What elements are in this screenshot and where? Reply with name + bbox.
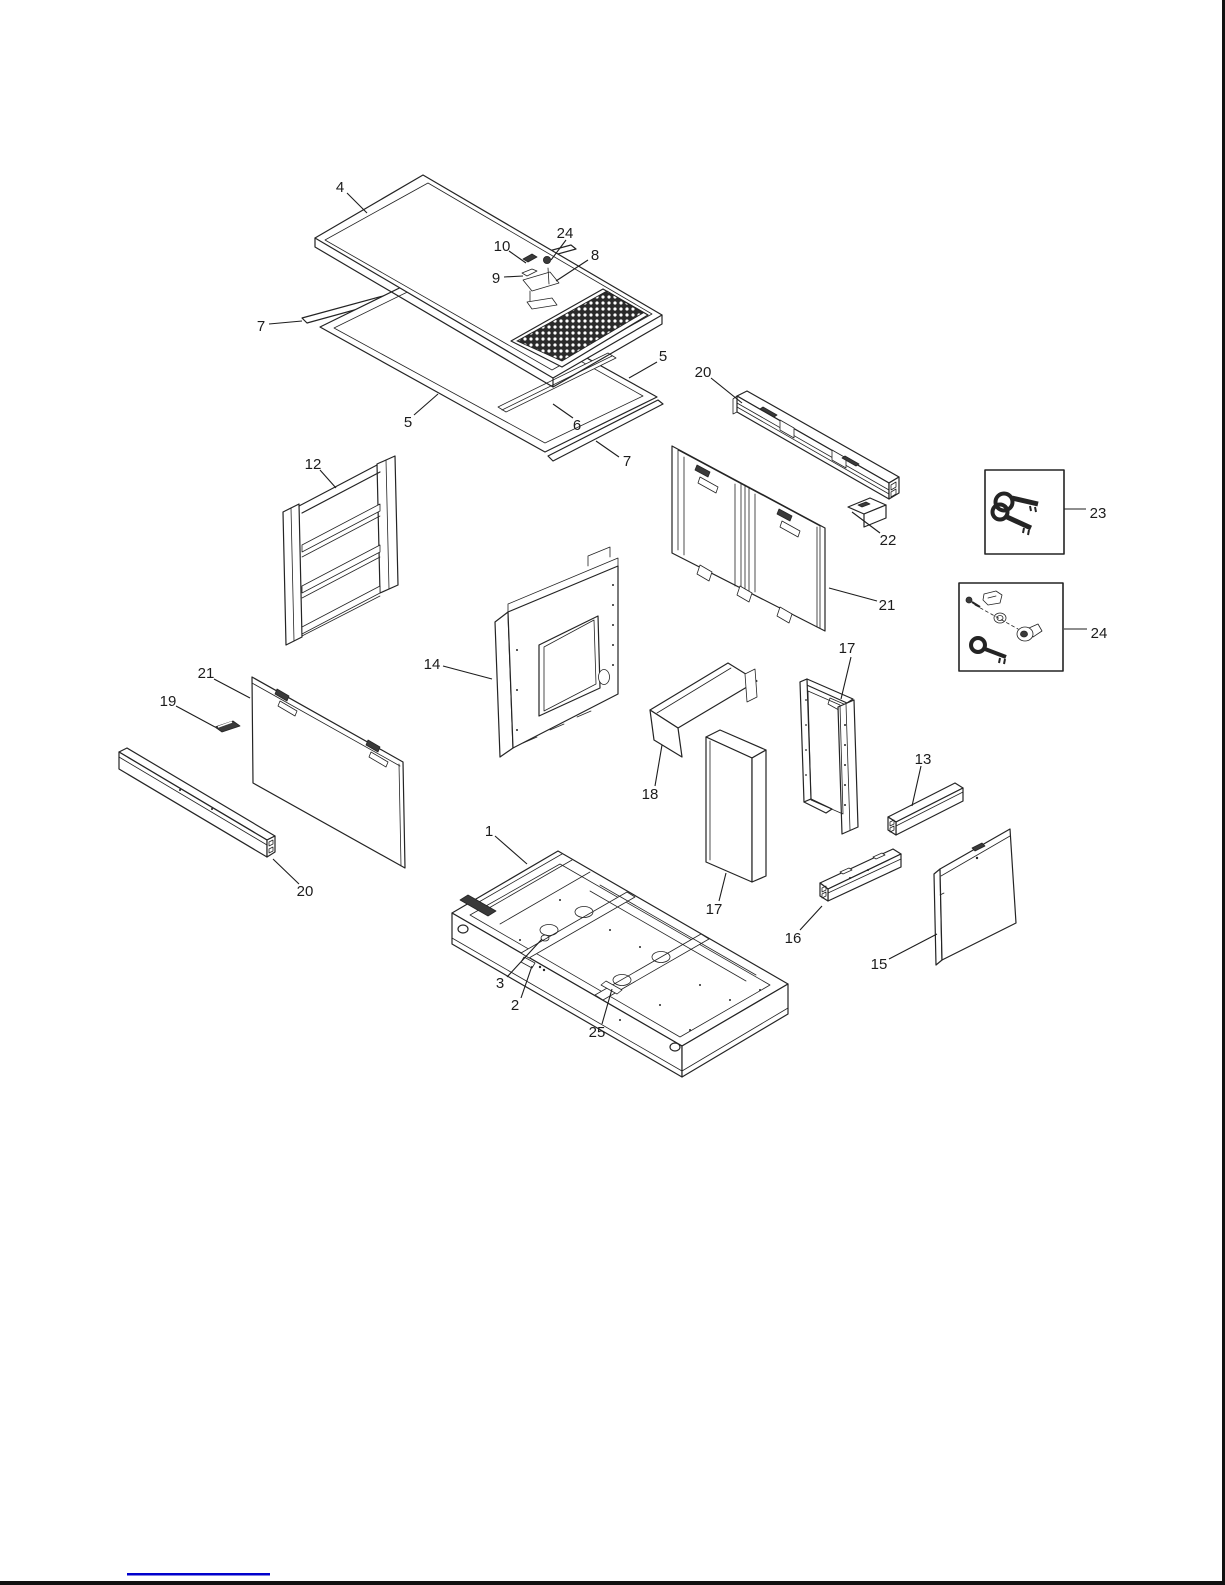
callout-latch-screw: 10 [494, 238, 511, 255]
callout-base-frame: 1 [485, 823, 493, 840]
part-15-access-panel [934, 829, 1016, 965]
leader-line-corner-post-center [719, 873, 726, 901]
callout-access-panel: 15 [871, 956, 888, 973]
callout-corner-post-center: 17 [706, 901, 723, 918]
callout-side-panel-left: 21 [198, 665, 215, 682]
leader-line-top-panel [347, 193, 367, 213]
inset-box-23-key-set [985, 470, 1064, 554]
part-12-louver-panel [283, 456, 398, 645]
callout-double-door-panel: 21 [879, 597, 896, 614]
leader-line-lower-bracket-rail [800, 906, 822, 930]
footer-hyperlink-rule[interactable] [127, 1573, 270, 1576]
part-16-lower-bracket-rail [820, 849, 901, 901]
inset-box-24-lock-kit [959, 583, 1063, 671]
leader-line-window-panel [443, 666, 492, 679]
callout-cross-rail: 6 [573, 417, 581, 434]
part-21-double-door-panel [672, 446, 825, 631]
part-17-corner-post-center [706, 730, 766, 882]
callout-lock-cylinder-top: 24 [557, 225, 574, 242]
part-20-upper-support-rail [733, 391, 899, 499]
part-20-lower-support-rail [119, 748, 275, 857]
leader-line-gasket-strip-upper [269, 321, 302, 324]
callout-base-bracket: 25 [589, 1024, 606, 1041]
leader-line-upper-support-rail [711, 378, 742, 403]
callout-upper-support-rail: 20 [695, 364, 712, 381]
part-13-short-rail [888, 783, 963, 835]
callout-base-plate: 2 [511, 997, 519, 1014]
part-1-base-frame [452, 851, 788, 1077]
leader-line-short-rail [912, 766, 921, 806]
leader-line-deflector-hood [655, 745, 662, 786]
callout-window-panel: 14 [424, 656, 441, 673]
part-17-corner-frame-right [800, 679, 858, 834]
callout-top-panel: 4 [336, 179, 344, 196]
callout-latch-plate: 8 [591, 247, 599, 264]
callout-key-set: 23 [1090, 505, 1107, 522]
callout-lower-support-rail: 20 [297, 883, 314, 900]
callout-short-rail: 13 [915, 751, 932, 768]
leader-line-lower-support-rail [273, 859, 299, 884]
callout-lock-kit: 24 [1091, 625, 1108, 642]
leader-line-gasket-strip-lower [596, 441, 619, 457]
callout-lower-bracket-rail: 16 [785, 930, 802, 947]
callout-base-grommet: 3 [496, 975, 504, 992]
callout-corner-frame-right: 17 [839, 640, 856, 657]
part-19-clip-plate [215, 721, 240, 732]
leader-line-clip-plate [176, 706, 215, 727]
callout-deflector-hood: 18 [642, 786, 659, 803]
part-14-window-panel [495, 547, 618, 757]
callout-side-rail-right: 5 [659, 348, 667, 365]
callout-louver-panel: 12 [305, 456, 322, 473]
callout-gasket-strip-lower: 7 [623, 453, 631, 470]
leader-line-access-panel [889, 934, 937, 959]
callout-side-rail-left: 5 [404, 414, 412, 431]
leader-line-double-door-panel [829, 588, 877, 601]
callout-small-bracket: 22 [880, 532, 897, 549]
leader-line-corner-frame-right [841, 657, 851, 699]
leader-line-side-panel-left [214, 679, 250, 698]
page-edge-border-bottom [0, 1581, 1225, 1585]
leader-line-louver-panel [320, 470, 336, 488]
callout-gasket-strip-upper: 7 [257, 318, 265, 335]
callout-clip-plate: 19 [160, 693, 177, 710]
leader-line-side-rail-left [414, 394, 438, 415]
exploded-parts-diagram: 4102489756572022212324121417181713192120… [0, 0, 1225, 1585]
lock-cylinder-small [543, 256, 550, 263]
leader-line-side-rail-right [629, 362, 657, 378]
leader-line-base-frame [495, 836, 527, 864]
callout-latch-clip: 9 [492, 270, 500, 287]
